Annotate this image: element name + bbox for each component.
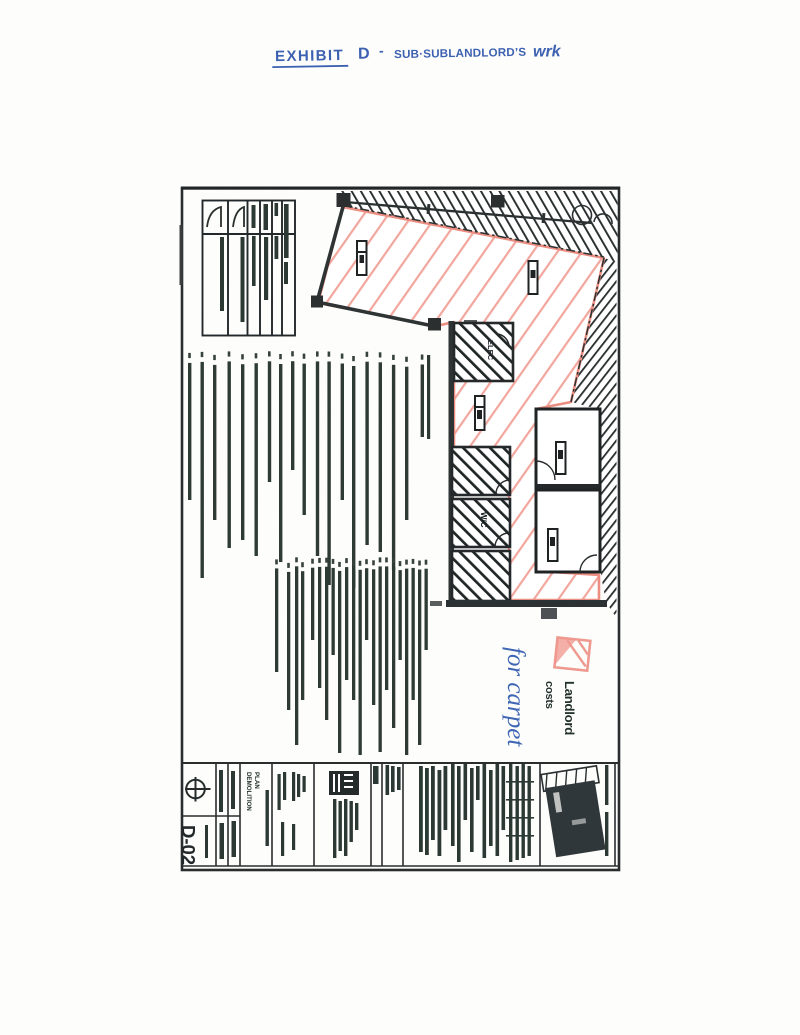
svg-text:SUB·SUBLANDLORD’S: SUB·SUBLANDLORD’S bbox=[394, 46, 526, 61]
svg-text:D: D bbox=[358, 46, 370, 63]
svg-text:EXHIBIT: EXHIBIT bbox=[275, 47, 344, 65]
svg-text:-: - bbox=[379, 42, 384, 58]
svg-text:wrk: wrk bbox=[533, 43, 562, 60]
